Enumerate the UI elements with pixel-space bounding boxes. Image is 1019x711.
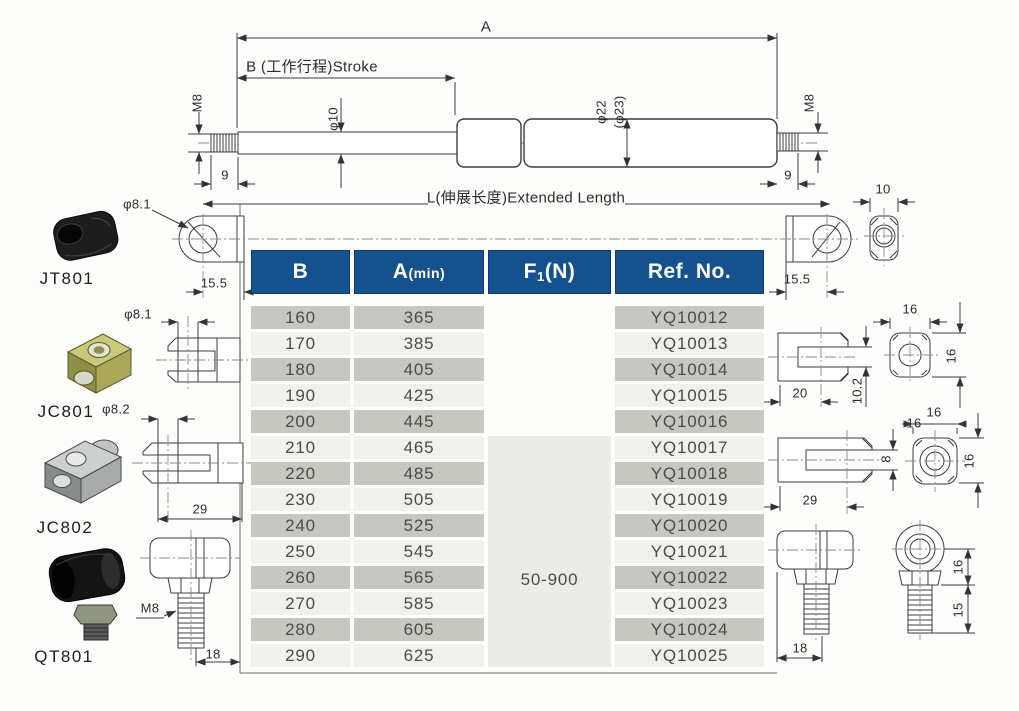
clevis-small-width-label: 16 <box>902 302 917 317</box>
dim-155-right-label: 15.5 <box>784 272 811 287</box>
clevis-big-slot-label: 8 <box>879 455 894 463</box>
ball-joint-width-label: 18 <box>792 641 807 656</box>
qt801-side-view <box>136 530 240 666</box>
table-spacer-row <box>251 297 764 303</box>
jc801-photo <box>68 334 131 393</box>
dim-b-stroke-label: B (工作行程)Stroke <box>246 56 378 77</box>
clevis-small-height-label: 16 <box>944 348 959 363</box>
f1-cell-lower: 50-900 <box>488 436 611 667</box>
clevis-big-width-b-label: 16 <box>906 416 921 431</box>
dim-m8-left-label: M8 <box>190 94 205 113</box>
dim-155-left-label: 15.5 <box>201 276 228 291</box>
jc802-hole-dia-label: φ8.2 <box>102 402 130 417</box>
jt801-name-label: JT801 <box>40 269 95 289</box>
dim-9-left-label: 9 <box>221 168 229 183</box>
col-header-b: B <box>251 250 350 294</box>
col-header-f1n: F1(N) <box>488 250 611 294</box>
clevis-big-height-label: 16 <box>962 453 977 468</box>
dim-phi23-label: (φ23) <box>612 95 627 128</box>
dim-m8-right-label: M8 <box>802 94 817 113</box>
extended-length-label: L(伸展长度)Extended Length <box>427 187 625 208</box>
spec-table: B A(min) F1(N) Ref. No. 160365YQ10012 17… <box>247 247 768 670</box>
dim-9-right-label: 9 <box>784 168 792 183</box>
qt801-photo <box>47 546 128 640</box>
table-row: 210465 50-900 YQ10017 <box>251 436 764 459</box>
ball-joint-eye-height-label: 16 <box>951 559 966 574</box>
gas-spring-datasheet: A B (工作行程)Stroke φ10 φ22 (φ23) M8 M8 9 9… <box>0 0 1019 711</box>
dim-10-label: 10 <box>875 182 890 197</box>
jt801-photo <box>51 209 120 263</box>
clevis-big-views <box>763 413 984 514</box>
f1-value: 50-900 <box>521 570 579 589</box>
f1-cell-upper <box>488 297 611 433</box>
clevis-small-slot-label: 10.2 <box>850 378 865 405</box>
jc801-hole-dia-label: φ8.1 <box>124 307 152 322</box>
spec-table-header: B A(min) F1(N) Ref. No. <box>251 250 764 294</box>
dim-phi22-label: φ22 <box>594 100 609 124</box>
qt801-thread-label: M8 <box>141 601 160 616</box>
qt801-name-label: QT801 <box>34 647 93 667</box>
clevis-big-width-a-label: 16 <box>926 405 941 420</box>
qt801-width-label: 18 <box>205 647 220 662</box>
clevis-big-depth-label: 29 <box>802 493 817 508</box>
ball-joint-stud-len-label: 15 <box>951 602 966 617</box>
dim-phi10-label: φ10 <box>326 107 341 131</box>
jc802-name-label: JC802 <box>37 518 94 538</box>
jc802-photo <box>45 440 121 503</box>
dim-a-label: A <box>481 19 491 36</box>
jc802-width-label: 29 <box>192 502 207 517</box>
col-header-a-min: A(min) <box>354 250 484 294</box>
clevis-small-depth-label: 20 <box>792 386 807 401</box>
jt801-hole-dia-label: φ8.1 <box>123 197 151 212</box>
col-header-ref-no: Ref. No. <box>615 250 764 294</box>
eyelet-side-view <box>853 198 915 266</box>
jc801-name-label: JC801 <box>38 402 95 422</box>
